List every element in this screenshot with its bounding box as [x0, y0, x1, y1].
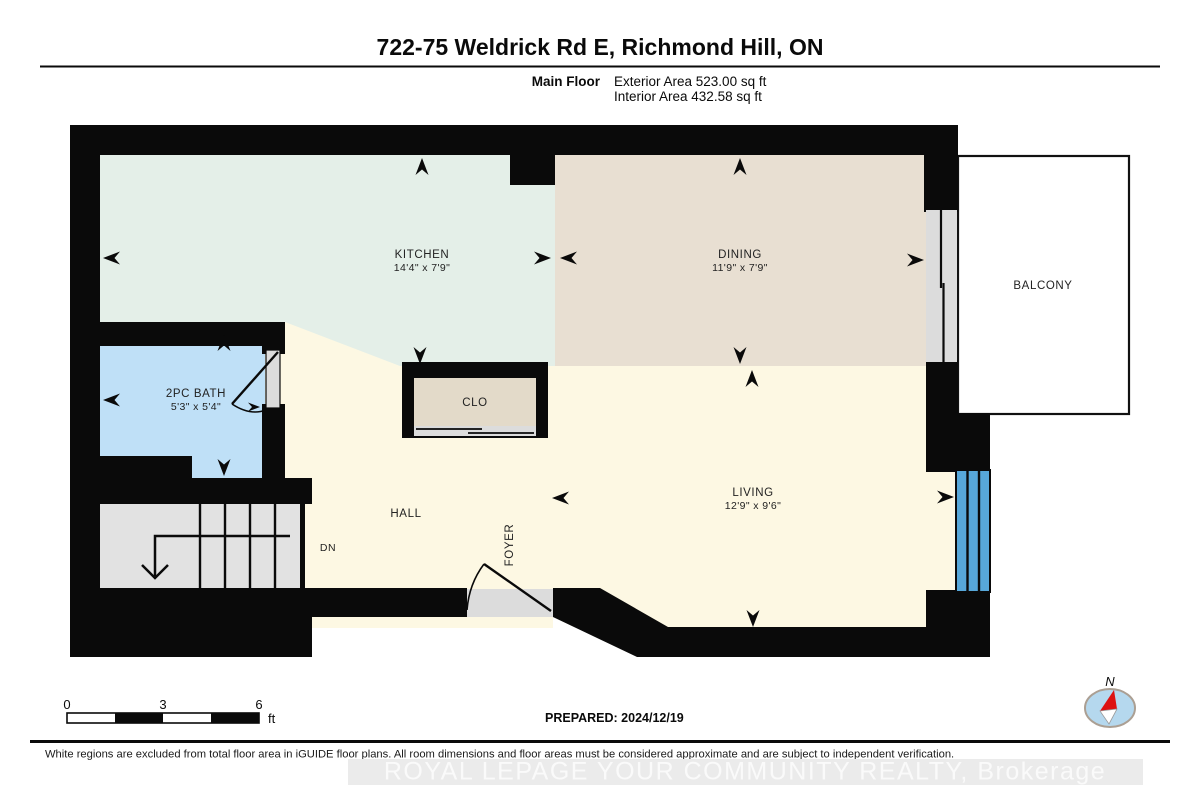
wall-kitchen-dining-stub — [510, 155, 555, 185]
scale-tick-3: 3 — [159, 697, 166, 712]
exterior-area: Exterior Area 523.00 sq ft — [614, 74, 767, 89]
foyer-label: FOYER — [504, 524, 516, 567]
wall-bath-notch — [100, 456, 192, 480]
wall-right-mid — [926, 360, 958, 472]
wall-bath-right-lower — [262, 404, 285, 480]
compass-icon: N — [1085, 674, 1135, 727]
kitchen-dims: 14'4" x 7'9" — [394, 262, 451, 274]
wall-bottom-hall — [310, 588, 467, 617]
window-glass — [956, 470, 990, 592]
floor-plan-canvas: 722-75 Weldrick Rd E, Richmond Hill, ON … — [0, 0, 1200, 805]
compass-north-label: N — [1105, 674, 1115, 689]
balcony-sliding-door — [926, 210, 957, 362]
wall-left — [70, 125, 100, 657]
scale-bar-segment — [211, 713, 259, 723]
kitchen-label: KITCHEN — [395, 249, 450, 261]
bath-dims: 5'3" x 5'4" — [171, 401, 221, 413]
closet-sliding-door — [414, 426, 536, 436]
prepared-date: PREPARED: 2024/12/19 — [545, 711, 684, 725]
page-title: 722-75 Weldrick Rd E, Richmond Hill, ON — [377, 34, 824, 60]
wall-top — [70, 125, 958, 155]
wall-bath-right-upper — [262, 322, 285, 354]
living-dims: 12'9" x 9'6" — [725, 500, 782, 512]
floor-plan-page: 722-75 Weldrick Rd E, Richmond Hill, ON … — [0, 0, 1200, 805]
interior-area: Interior Area 432.58 sq ft — [614, 89, 762, 104]
stairs-dn-label: DN — [320, 542, 336, 554]
wall-bottom-left — [70, 588, 312, 657]
wall-bottom-right — [926, 590, 990, 630]
scale-bar: 0 3 6 ft — [63, 697, 275, 726]
wall-below-bath — [70, 478, 312, 504]
stairs — [100, 502, 300, 590]
scale-tick-0: 0 — [63, 697, 70, 712]
scale-bar-segment — [115, 713, 163, 723]
wall-right-upper — [924, 155, 958, 212]
closet-label: CLO — [462, 397, 487, 409]
footer: White regions are excluded from total fl… — [30, 742, 1170, 786]
dining-dims: 11'9" x 7'9" — [712, 262, 768, 274]
hall-label: HALL — [390, 508, 421, 520]
balcony-label: BALCONY — [1013, 280, 1072, 292]
living-window — [956, 470, 990, 592]
scale-unit: ft — [268, 711, 276, 726]
wall-balcony-bottom — [956, 413, 990, 472]
wall-bath-top — [70, 322, 285, 346]
scale-tick-6: 6 — [255, 697, 262, 712]
living-label: LIVING — [732, 487, 773, 499]
bath-label: 2PC BATH — [166, 388, 226, 400]
header: 722-75 Weldrick Rd E, Richmond Hill, ON … — [40, 34, 1160, 104]
wall-stairs-edge — [300, 502, 305, 590]
room-living-window-nook — [930, 470, 956, 592]
brokerage-watermark: ROYAL LEPAGE YOUR COMMUNITY REALTY, Brok… — [384, 758, 1106, 786]
floor-label: Main Floor — [532, 74, 601, 89]
dining-label: DINING — [718, 249, 762, 261]
